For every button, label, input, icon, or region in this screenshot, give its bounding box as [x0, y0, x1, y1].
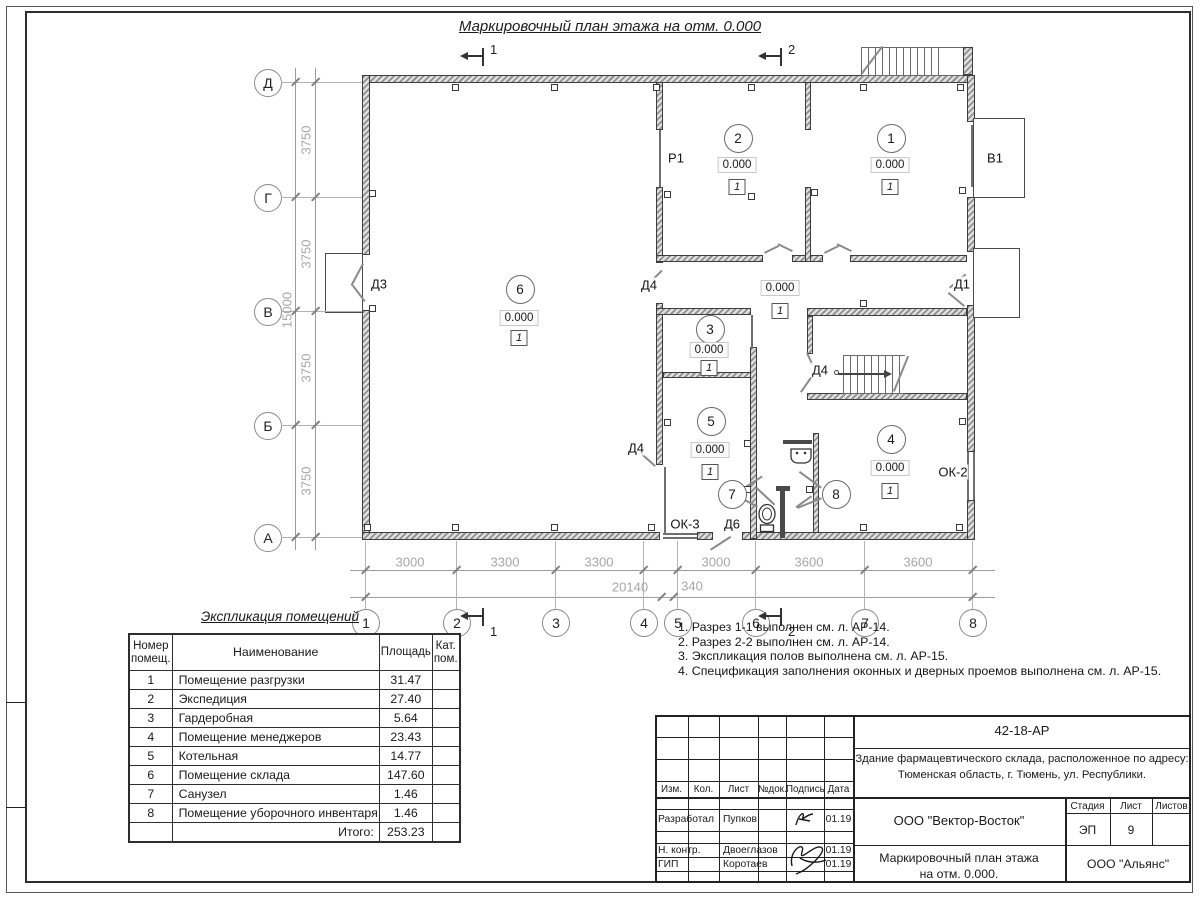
stamp-col-kol: Кол. [688, 784, 719, 795]
pier-mark [748, 193, 755, 200]
wall-room1-2-divider-a [805, 82, 811, 130]
wall-room1-2-divider-b [805, 187, 811, 262]
doc-number: 42-18-АР [853, 723, 1191, 738]
stamp-role-developer: Разработал [658, 814, 714, 825]
stair-arrow-head [884, 370, 892, 378]
opening-tag-ОК-3: ОК-3 [669, 517, 700, 532]
wall-right-2 [967, 197, 975, 252]
room-schedule-table: Номер помещ.НаименованиеПлощадьКат. пом.… [128, 633, 461, 843]
note-item: 1. Разрез 1-1 выполнен см. л. АР-14. [678, 620, 890, 634]
room-number-3: 3 [696, 315, 725, 344]
axis-line [643, 541, 644, 609]
axis-line [972, 541, 973, 609]
section-mark-tick [780, 48, 782, 66]
customer-org: ООО "Альянс" [1065, 857, 1191, 871]
schedule-cell [432, 671, 459, 690]
stamp-col-izm: Изм. [655, 784, 688, 795]
dim-label: 3600 [795, 555, 824, 570]
axis-line [365, 541, 366, 609]
sheet-label: Лист [1110, 801, 1152, 812]
opening-tag-ОК-2: ОК-2 [937, 465, 968, 480]
door-swing [778, 244, 793, 252]
wall-bottom-left [362, 532, 660, 540]
stamp-name-ncontrol: Двоеглазов [723, 845, 778, 856]
wall-bottom-pier [697, 532, 713, 540]
section-mark-number: 1 [490, 42, 497, 57]
wall-corridor-north-a [656, 255, 763, 262]
axis-line [677, 541, 678, 609]
schedule-cell [432, 785, 459, 804]
axis-bubble-4: 4 [630, 609, 658, 637]
room-number-7: 7 [718, 480, 747, 509]
schedule-cell [432, 766, 459, 785]
schedule-cell: Помещение менеджеров [172, 728, 379, 747]
schedule-header: Кат. пом. [432, 634, 459, 671]
pier-mark [551, 84, 558, 91]
schedule-cell: 31.47 [379, 671, 432, 690]
pier-mark [748, 84, 755, 91]
schedule-cell: 2 [129, 690, 172, 709]
section-mark-tick [482, 48, 484, 66]
schedule-cell: 27.40 [379, 690, 432, 709]
opening-tag-Д6: Д6 [723, 517, 741, 532]
axis-line [755, 541, 756, 609]
dim-label: 3600 [904, 555, 933, 570]
dim-label: 3750 [299, 126, 314, 155]
window-ok3-line [663, 537, 697, 539]
room-schedule-body: 1Помещение разгрузки31.472Экспедиция27.4… [129, 671, 460, 843]
leader-line [948, 292, 965, 307]
schedule-cell: 7 [129, 785, 172, 804]
sheets-label: Листов [1152, 801, 1191, 812]
wall-hall-west [750, 347, 757, 539]
pier-mark [860, 524, 867, 531]
dim-label: 3000 [702, 555, 731, 570]
elevation-mark: 0.000 [871, 157, 910, 173]
schedule-header: Площадь [379, 634, 432, 671]
door-swing [837, 244, 852, 252]
stamp-line [655, 797, 1191, 799]
schedule-total-row: Итого:253.23 [129, 823, 460, 843]
dim-label: 3750 [299, 467, 314, 496]
floor-type-mark: 1 [511, 330, 528, 346]
pier-mark [860, 300, 867, 307]
section-mark-line [467, 615, 482, 617]
wall-left-upper [362, 75, 370, 255]
room-number-8: 8 [822, 480, 851, 509]
axis-bubble-Г: Г [254, 184, 282, 212]
section-mark-line [467, 55, 482, 57]
object-description-line1: Здание фармацевтического склада, располо… [855, 753, 1189, 765]
schedule-total-cell: 253.23 [379, 823, 432, 843]
axis-bubble-А: А [254, 524, 282, 552]
pier-mark [959, 187, 966, 194]
note-item: 2. Разрез 2-2 выполнен см. л. АР-14. [678, 635, 890, 649]
stamp-name-developer: Пупков [723, 814, 757, 825]
schedule-header: Номер помещ. [129, 634, 172, 671]
note-item: 3. Экспликация полов выполнена см. л. АР… [678, 649, 948, 663]
elevation-mark: 0.000 [691, 442, 730, 458]
window-ok2-line [973, 452, 975, 500]
section-mark-arrow [460, 52, 468, 60]
wall-bottom-right [742, 532, 975, 540]
stamp-col-date: Дата [824, 784, 853, 795]
schedule-cell: Санузел [172, 785, 379, 804]
wall-top [362, 75, 975, 83]
leader-line [800, 377, 812, 393]
floor-type-mark: 1 [729, 179, 746, 195]
sheet-title-line2: на отм. 0.000. [853, 867, 1065, 881]
stair-arrow-dot [834, 370, 839, 375]
partition-wc8-top [783, 440, 812, 444]
section-mark-tick [482, 608, 484, 626]
dim-label: 3750 [299, 354, 314, 383]
section-mark-number: 1 [490, 624, 497, 639]
dim-label: 340 [681, 579, 703, 594]
wall-stair-south [807, 393, 967, 400]
opening-tag-Д3: Д3 [370, 277, 388, 292]
gate-r1-line [659, 130, 661, 187]
dim-label: 15000 [280, 292, 295, 328]
pier-mark [956, 524, 963, 531]
pier-mark [664, 419, 671, 426]
toilet-icon [757, 503, 777, 533]
schedule-cell: 3 [129, 709, 172, 728]
axis-line [555, 541, 556, 609]
schedule-cell: 23.43 [379, 728, 432, 747]
dim-line-bottom-1 [350, 570, 995, 571]
pier-mark [653, 84, 660, 91]
schedule-cell: 147.60 [379, 766, 432, 785]
stamp-name-gip: Коротаев [723, 859, 767, 870]
wall-ext-stair-side [963, 47, 973, 75]
schedule-row: 7Санузел1.46 [129, 785, 460, 804]
schedule-row: 8Помещение уборочного инвентаря1.46 [129, 804, 460, 823]
exterior-stair-landing [943, 47, 963, 76]
elevation-mark: 0.000 [718, 157, 757, 173]
schedule-row: 3Гардеробная5.64 [129, 709, 460, 728]
axis-line [864, 541, 865, 609]
elevation-mark: 0.000 [761, 280, 800, 296]
schedule-cell: Экспедиция [172, 690, 379, 709]
pier-mark [860, 84, 867, 91]
stair-arrow-line [838, 373, 886, 375]
object-description-line2: Тюменская область, г. Тюмень, ул. Респуб… [855, 769, 1189, 781]
schedule-cell: 1.46 [379, 804, 432, 823]
opening-tag-Д4: Д4 [627, 441, 645, 456]
wall-right-4 [967, 500, 975, 540]
sink-icon [789, 447, 813, 464]
elevation-mark: 0.000 [871, 460, 910, 476]
schedule-cell: Котельная [172, 747, 379, 766]
stamp-role-gip: ГИП [658, 859, 678, 870]
stamp-line [655, 831, 854, 832]
floor-type-mark: 1 [701, 360, 718, 376]
schedule-total-cell [432, 823, 459, 843]
pier-mark [648, 524, 655, 531]
stamp-col-list: Лист [719, 784, 758, 795]
door-swing [764, 245, 779, 253]
stamp-line [655, 809, 854, 810]
pier-mark [811, 189, 818, 196]
schedule-cell [432, 690, 459, 709]
section-mark-line [765, 615, 780, 617]
room-number-2: 2 [724, 124, 753, 153]
wall-stair-west [807, 316, 813, 354]
stamp-role-ncontrol: Н. контр. [658, 845, 701, 856]
stage-value: ЭП [1065, 823, 1110, 837]
pier-mark [551, 524, 558, 531]
stamp-line [655, 737, 854, 738]
pier-mark [959, 418, 966, 425]
schedule-row: 2Экспедиция27.40 [129, 690, 460, 709]
schedule-cell: 14.77 [379, 747, 432, 766]
elevation-mark: 0.000 [690, 342, 729, 358]
schedule-row: 4Помещение менеджеров23.43 [129, 728, 460, 747]
wall-warehouse-east-b [656, 187, 663, 263]
schedule-cell [432, 709, 459, 728]
dim-label: 3300 [491, 555, 520, 570]
legend-title: Экспликация помещений [128, 609, 432, 624]
door-swing [824, 245, 839, 253]
dim-label: 3000 [396, 555, 425, 570]
room-number-4: 4 [877, 425, 906, 454]
opening-tag-Д4: Д4 [640, 278, 658, 293]
wall-room3-north [656, 308, 751, 315]
schedule-cell: 8 [129, 804, 172, 823]
section-mark-line [765, 55, 780, 57]
stamp-line [853, 748, 1191, 749]
stamp-line [655, 759, 854, 760]
schedule-cell: 6 [129, 766, 172, 785]
schedule-row: 1Помещение разгрузки31.47 [129, 671, 460, 690]
axis-line [456, 541, 457, 609]
schedule-cell: Помещение разгрузки [172, 671, 379, 690]
schedule-cell: 5.64 [379, 709, 432, 728]
axis-bubble-Б: Б [254, 412, 282, 440]
axis-bubble-В: В [254, 298, 282, 326]
room-number-6: 6 [506, 275, 535, 304]
pier-mark [369, 190, 376, 197]
wall-right-3 [967, 305, 975, 452]
stamp-line [1065, 813, 1191, 814]
leader-line [710, 536, 731, 550]
schedule-cell: 1 [129, 671, 172, 690]
room-schedule-header: Номер помещ.НаименованиеПлощадьКат. пом. [129, 634, 460, 671]
schedule-cell: Помещение уборочного инвентаря [172, 804, 379, 823]
wall-left-lower [362, 310, 370, 540]
pier-mark [957, 84, 964, 91]
stage-label: Стадия [1065, 801, 1110, 812]
stamp-col-sign: Подпись [786, 784, 824, 795]
design-org: ООО "Вектор-Восток" [853, 813, 1065, 828]
sheet-title-line1: Маркировочный план этажа [853, 851, 1065, 865]
signature-ncontrol-gip [786, 836, 830, 880]
exterior-stair [861, 47, 943, 76]
room-number-1: 1 [877, 124, 906, 153]
section-mark-number: 2 [788, 42, 795, 57]
wall-corridor-north-c [850, 255, 967, 262]
door-room3-leaf [751, 315, 753, 348]
floor-type-mark: 1 [772, 303, 789, 319]
schedule-cell [432, 747, 459, 766]
wall-right-1 [967, 75, 975, 122]
stamp-line [853, 845, 1191, 846]
schedule-cell: Гардеробная [172, 709, 379, 728]
schedule-cell [432, 728, 459, 747]
stamp-date-developer: 01.19 [824, 814, 853, 825]
room-number-5: 5 [697, 407, 726, 436]
elevation-mark: 0.000 [500, 310, 539, 326]
schedule-total-cell: Итого: [172, 823, 379, 843]
partition-wc-divider [780, 491, 785, 538]
dim-label: 20140 [612, 580, 648, 595]
axis-bubble-Д: Д [254, 69, 282, 97]
pier-mark [664, 191, 671, 198]
vestibule-d3 [325, 253, 363, 313]
pier-mark [369, 305, 376, 312]
wall-warehouse-east-c [656, 303, 663, 465]
pier-mark [364, 524, 371, 531]
dim-label: 3750 [299, 240, 314, 269]
axis-bubble-8: 8 [959, 609, 987, 637]
section-mark-arrow [758, 612, 766, 620]
schedule-cell: 4 [129, 728, 172, 747]
door-d4-boiler-leaf [664, 467, 666, 533]
schedule-cell: Помещение склада [172, 766, 379, 785]
floor-type-mark: 1 [882, 483, 899, 499]
floor-type-mark: 1 [702, 464, 719, 480]
stamp-line [655, 781, 854, 782]
schedule-cell: 1.46 [379, 785, 432, 804]
pier-mark [806, 486, 813, 493]
opening-tag-Р1: Р1 [667, 151, 685, 166]
schedule-row: 6Помещение склада147.60 [129, 766, 460, 785]
signature-developer [793, 809, 821, 829]
schedule-total-cell [129, 823, 172, 843]
pier-mark [744, 440, 751, 447]
schedule-cell [432, 804, 459, 823]
opening-tag-Д4: Д4 [811, 363, 829, 378]
floor-type-mark: 1 [882, 179, 899, 195]
drawing-sheet: Маркировочный план этажа на отм. 0.000 [0, 0, 1200, 900]
window-ok3-line [663, 533, 697, 535]
note-item: 4. Спецификация заполнения оконных и две… [678, 664, 1161, 678]
sheet-value: 9 [1110, 823, 1152, 837]
pier-mark [452, 84, 459, 91]
section-mark-arrow [460, 612, 468, 620]
axis-bubble-3: 3 [542, 609, 570, 637]
pier-mark [452, 524, 459, 531]
schedule-header: Наименование [172, 634, 379, 671]
schedule-row: 5Котельная14.77 [129, 747, 460, 766]
dim-label: 3300 [585, 555, 614, 570]
opening-tag-В1: В1 [986, 151, 1004, 166]
section-mark-arrow [758, 52, 766, 60]
opening-tag-Д1: Д1 [953, 277, 971, 292]
platform-d1 [973, 248, 1020, 318]
wall-stair-north [807, 308, 967, 316]
schedule-cell: 5 [129, 747, 172, 766]
stamp-col-doc: №док. [758, 784, 786, 795]
